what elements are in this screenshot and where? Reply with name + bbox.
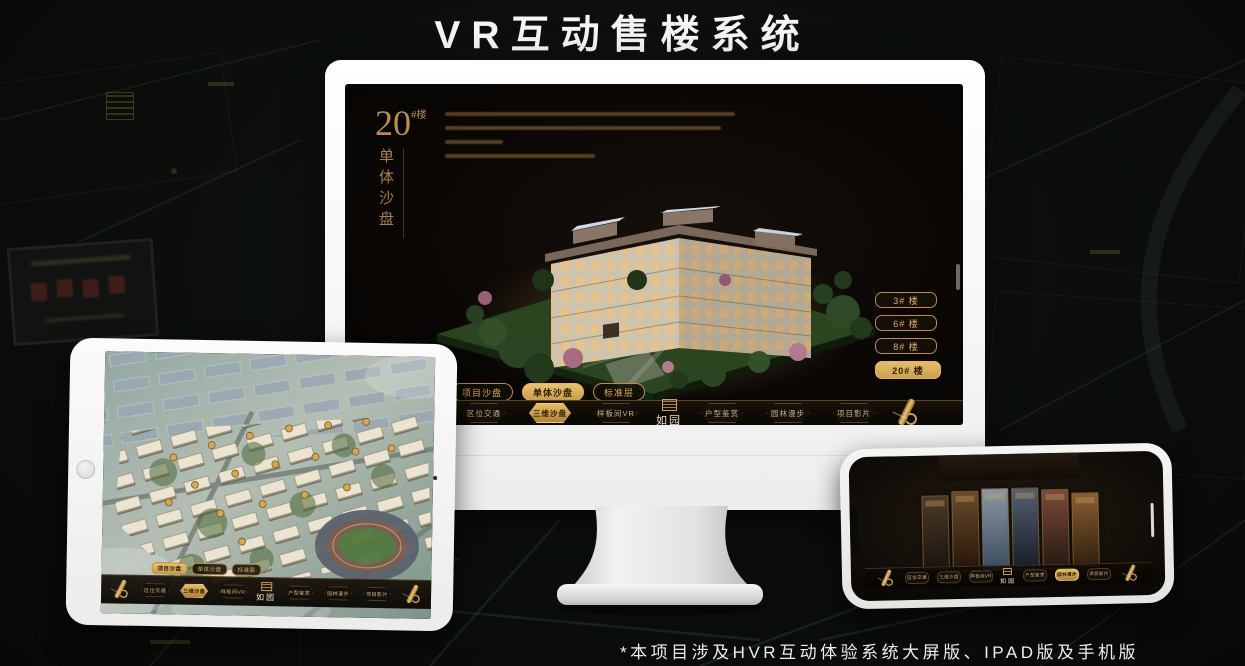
floor-button-20[interactable]: 20# 楼 — [875, 361, 941, 379]
panel-thumb-garden[interactable] — [1041, 489, 1070, 570]
nav-item-3d-sandtable[interactable]: 三维沙盘 — [936, 570, 962, 584]
phone-device: 区位交通 三维沙盘 样板间VR 如园 户型鉴赏 园林漫步 — [839, 443, 1174, 610]
tablet-screen: 项目沙盘 单体沙盘 标准层 区位交通 三维沙盘 样板间VR — [101, 351, 436, 619]
nav-item-3d-sandtable[interactable]: 三维沙盘 — [524, 402, 576, 424]
background-emblem — [106, 92, 134, 120]
nav-item-3d-sandtable[interactable]: 三维沙盘 — [178, 583, 210, 600]
footer-note: *本项目涉及HVR互动体验系统大屏版、IPAD版及手机版 — [620, 638, 1139, 663]
nav-item-location-traffic[interactable]: 区位交通 — [458, 402, 510, 424]
camera-dot — [433, 476, 437, 480]
nav-item-floorplan[interactable]: 户型鉴赏 — [1022, 569, 1048, 583]
tablet-tab-standard-floor[interactable]: 标准层 — [231, 563, 261, 576]
tab-standard-floor[interactable]: 标准层 — [593, 383, 645, 401]
nav-item-project-film[interactable]: 项目影片 — [1086, 567, 1112, 581]
unit-heading: 20#楼 单体沙盘 — [375, 106, 427, 232]
intro-text-line — [445, 112, 735, 116]
phone-screen: 区位交通 三维沙盘 样板间VR 如园 户型鉴赏 园林漫步 — [849, 451, 1166, 602]
notch — [849, 503, 858, 555]
home-indicator[interactable] — [1151, 503, 1155, 537]
view-tabs: 项目沙盘 单体沙盘 标准层 — [451, 383, 645, 401]
intro-text-line — [445, 126, 721, 130]
brand-logo: 如园 — [656, 399, 682, 426]
seal-icon — [1003, 567, 1012, 574]
scroll-menu-icon[interactable] — [1122, 566, 1137, 581]
promo-canvas: VR互动售楼系统 20#楼 单体沙盘 — [0, 0, 1245, 666]
brand-logo: 如园 — [256, 581, 276, 602]
scroll-menu-icon[interactable] — [878, 571, 893, 586]
building-3d-render[interactable] — [423, 162, 885, 402]
floor-selector: 3# 楼 6# 楼 8# 楼 20# 楼 — [875, 292, 941, 379]
intro-text-line — [445, 154, 595, 158]
nav-item-floorplan[interactable]: 户型鉴赏 — [696, 402, 748, 424]
unit-suffix: #楼 — [411, 110, 427, 121]
monitor-stand — [545, 506, 775, 618]
tablet-view-tabs: 项目沙盘 单体沙盘 标准层 — [151, 562, 261, 576]
floor-button-8[interactable]: 8# 楼 — [875, 338, 937, 354]
nav-item-garden-walk[interactable]: 园林漫步 — [322, 585, 354, 602]
seal-icon — [662, 399, 677, 411]
tablet-tab-project-sandtable[interactable]: 项目沙盘 — [151, 562, 187, 575]
nav-item-floorplan[interactable]: 户型鉴赏 — [283, 584, 315, 601]
tab-project-sandtable[interactable]: 项目沙盘 — [451, 383, 513, 401]
floor-button-6[interactable]: 6# 楼 — [875, 315, 937, 331]
nav-item-model-room-vr[interactable]: 样板间VR — [590, 402, 642, 424]
home-button[interactable] — [76, 460, 95, 479]
scroll-menu-icon[interactable] — [112, 581, 129, 598]
tablet-tab-single-sandtable[interactable]: 单体沙盘 — [191, 563, 227, 576]
intro-text-line — [445, 140, 503, 144]
tab-single-sandtable[interactable]: 单体沙盘 — [522, 383, 584, 401]
seal-icon — [261, 582, 272, 591]
nav-item-location-traffic[interactable]: 区位交通 — [139, 582, 171, 599]
panel-thumb-study[interactable] — [1071, 492, 1100, 567]
nav-item-garden-walk[interactable]: 园林漫步 — [1054, 568, 1080, 582]
nav-item-project-film[interactable]: 项目影片 — [361, 586, 393, 603]
floor-button-3[interactable]: 3# 楼 — [875, 292, 937, 308]
screen-scrollbar[interactable] — [956, 264, 960, 290]
panel-thumb-kitchen[interactable] — [951, 491, 980, 572]
unit-subtitle: 单体沙盘 — [375, 148, 396, 232]
nav-item-model-room-vr[interactable]: 样板间VR — [968, 570, 994, 584]
panel-thumb-interior[interactable] — [921, 495, 950, 570]
background-plaque — [7, 238, 159, 346]
tablet-navbar: 区位交通 三维沙盘 样板间VR 如园 户型鉴赏 — [101, 574, 431, 609]
brand-logo: 如园 — [1000, 567, 1016, 584]
panel-thumb-building[interactable] — [1011, 487, 1040, 570]
unit-number: 20 — [375, 103, 411, 143]
nav-item-model-room-vr[interactable]: 样板间VR — [217, 583, 249, 600]
page-title: VR互动售楼系统 — [0, 4, 1245, 60]
unit-heading-rule — [403, 148, 404, 238]
nav-item-project-film[interactable]: 项目影片 — [828, 402, 880, 424]
nav-item-location-traffic[interactable]: 区位交通 — [904, 571, 930, 585]
scroll-menu-icon[interactable] — [404, 586, 421, 603]
scroll-menu-icon[interactable] — [894, 401, 918, 425]
tablet-device: 项目沙盘 单体沙盘 标准层 区位交通 三维沙盘 样板间VR — [66, 338, 458, 632]
interior-backdrop — [939, 452, 1080, 481]
panel-thumb-exterior[interactable] — [981, 488, 1010, 571]
nav-item-garden-walk[interactable]: 园林漫步 — [762, 402, 814, 424]
